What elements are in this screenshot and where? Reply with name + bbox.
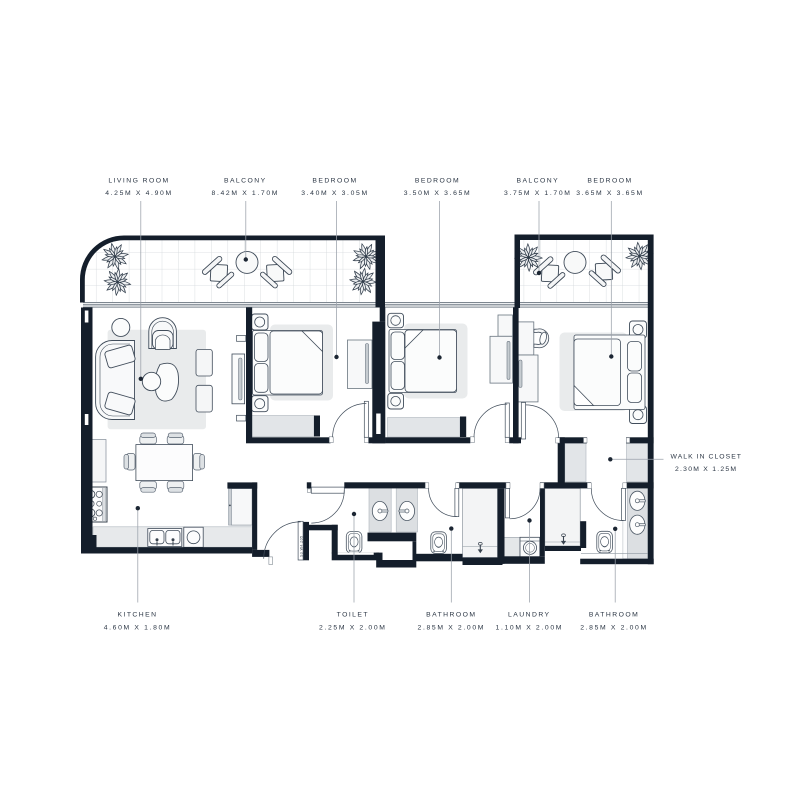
svg-text:2.30M X 1.25M: 2.30M X 1.25M xyxy=(675,466,737,473)
svg-text:BATHROOM: BATHROOM xyxy=(589,612,639,619)
svg-text:KITCHEN: KITCHEN xyxy=(118,612,158,619)
svg-text:4.25M X 4.90M: 4.25M X 4.90M xyxy=(105,190,173,197)
svg-text:3.40M X 3.05M: 3.40M X 3.05M xyxy=(301,190,369,197)
svg-text:3.50M X 3.65M: 3.50M X 3.65M xyxy=(404,190,472,197)
svg-text:4.60M X 1.80M: 4.60M X 1.80M xyxy=(104,625,172,632)
svg-text:2.25M X 2.00M: 2.25M X 2.00M xyxy=(319,625,387,632)
svg-text:1.10M X 2.00M: 1.10M X 2.00M xyxy=(496,625,564,632)
svg-text:BEDROOM: BEDROOM xyxy=(312,177,357,184)
svg-text:BALCONY: BALCONY xyxy=(516,177,559,184)
svg-text:BALCONY: BALCONY xyxy=(224,177,267,184)
svg-text:WALK IN CLOSET: WALK IN CLOSET xyxy=(671,454,742,461)
svg-text:3.65M X 3.65M: 3.65M X 3.65M xyxy=(576,190,644,197)
svg-text:LIVING ROOM: LIVING ROOM xyxy=(108,177,169,184)
svg-text:8.42M X 1.70M: 8.42M X 1.70M xyxy=(212,190,280,197)
svg-text:3.75M X 1.70M: 3.75M X 1.70M xyxy=(504,190,572,197)
svg-text:2.85M X 2.00M: 2.85M X 2.00M xyxy=(580,625,648,632)
svg-text:BEDROOM: BEDROOM xyxy=(587,177,632,184)
svg-text:TOILET: TOILET xyxy=(337,612,369,619)
svg-text:LAUNDRY: LAUNDRY xyxy=(508,612,551,619)
svg-text:S3 W4 205: S3 W4 205 xyxy=(300,536,304,557)
svg-text:BEDROOM: BEDROOM xyxy=(415,177,460,184)
svg-text:2.85M X 2.00M: 2.85M X 2.00M xyxy=(418,625,486,632)
svg-text:BATHROOM: BATHROOM xyxy=(426,612,476,619)
